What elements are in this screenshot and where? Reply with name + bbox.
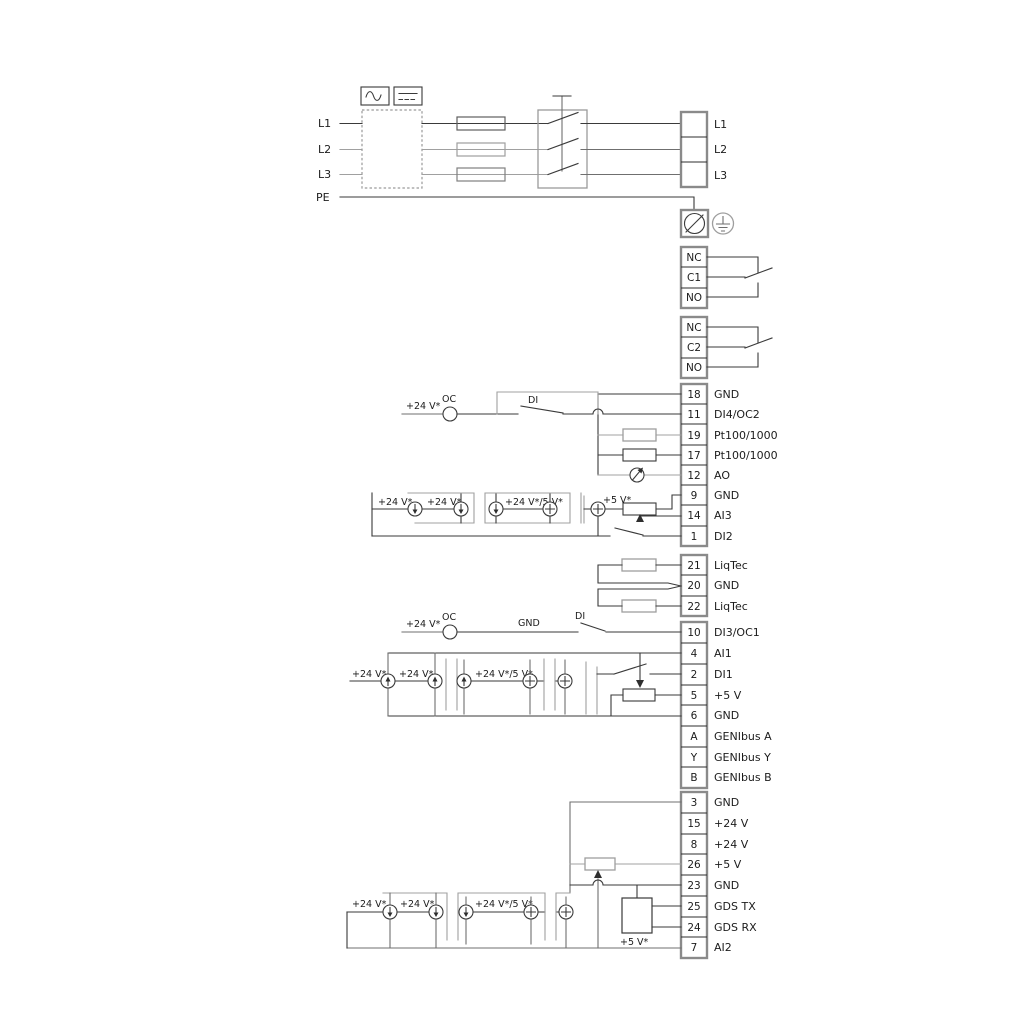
io1-t6-label: AI3 <box>714 509 732 522</box>
io2-t7-label: GENIbus B <box>714 771 772 784</box>
io2-t6-label: GENIbus Y <box>714 751 771 764</box>
output-label-l2: L2 <box>714 143 727 156</box>
io2-t3-num: 5 <box>691 690 698 702</box>
io3-t2-num: 8 <box>691 839 698 851</box>
wire-11-right <box>563 409 681 414</box>
ann-oc-io1: OC <box>442 394 456 405</box>
io3-t0-num: 3 <box>691 797 698 809</box>
io3-t6-label: GDS RX <box>714 921 757 934</box>
io3-t5-label: GDS TX <box>714 900 756 913</box>
dc-symbol-icon <box>394 87 422 105</box>
current-source-icon-d3 <box>459 905 473 919</box>
io1-t2-num: 19 <box>687 430 700 442</box>
oc-circle-icon-2 <box>443 625 457 639</box>
input-label-l3: L3 <box>318 168 331 181</box>
ann-v245-d: +24 V*/5 V* <box>475 899 533 910</box>
io3-section: 3 15 8 26 23 25 24 7 GND +24 V +24 V +5 … <box>347 792 757 958</box>
io1-t1-num: 11 <box>687 409 700 421</box>
io2-t2-num: 2 <box>691 669 698 681</box>
analog-output-meter-icon <box>630 468 644 483</box>
io3-t1-num: 15 <box>687 818 700 830</box>
pot-c-left <box>611 695 623 716</box>
liqtec-sensor-icon-2 <box>622 600 656 612</box>
io2-t1-num: 4 <box>691 648 698 660</box>
voltage-source-icon-c4 <box>523 674 537 688</box>
ann-v24-io2: +24 V* <box>406 619 441 630</box>
liqtec-t2-num: 22 <box>687 601 700 613</box>
io3-t3-label: +5 V <box>714 858 742 871</box>
io2-t6-num: Y <box>690 752 698 764</box>
io1-t7-label: DI2 <box>714 530 733 543</box>
ann-v24-d1: +24 V* <box>352 899 387 910</box>
io2-t4-num: 6 <box>691 710 698 722</box>
voltage-source-icon-c5 <box>558 674 572 688</box>
io1-t5-num: 9 <box>691 490 698 502</box>
current-source-icon-a1 <box>408 502 422 516</box>
ann-v5-d: +5 V* <box>620 937 649 948</box>
ann-v24-io1: +24 V* <box>406 401 441 412</box>
io1-t0-label: GND <box>714 388 739 401</box>
relay1-section: NC C1 NO <box>681 247 772 308</box>
relay1-no-wire <box>707 283 758 297</box>
wiring-diagram: L1 L2 L3 PE <box>0 0 1024 1024</box>
io1-t5-label: GND <box>714 489 739 502</box>
relay2-c2: C2 <box>687 342 701 354</box>
pe-screw-terminal-icon <box>681 210 708 237</box>
earth-ground-icon <box>713 213 734 234</box>
pot-wiper-arrow-d <box>594 870 602 878</box>
src-c-risers <box>388 653 565 716</box>
pt100-resistor-icon-1 <box>623 429 656 441</box>
current-source-icon-a2 <box>454 502 468 516</box>
wire-9 <box>656 495 681 509</box>
io3-t4-num: 23 <box>687 880 700 892</box>
io3-t0-label: GND <box>714 796 739 809</box>
output-label-l1: L1 <box>714 118 727 131</box>
io3-t1-label: +24 V <box>714 817 749 830</box>
di-blade-2 <box>581 623 681 632</box>
ann-v24-a1: +24 V* <box>378 497 413 508</box>
mains-terminal-block <box>681 112 707 187</box>
voltage-source-icon-d5 <box>559 905 573 919</box>
di2-blade <box>615 528 681 536</box>
io2-t1-label: AI1 <box>714 647 732 660</box>
io2-t0-num: 10 <box>687 627 700 639</box>
di1-switch <box>597 664 681 674</box>
io2-t2-label: DI1 <box>714 668 733 681</box>
wire-3-gnd <box>570 802 681 893</box>
output-label-l3: L3 <box>714 169 727 182</box>
liqtec-loop-1 <box>598 565 681 586</box>
relay2-nc-wire <box>707 327 758 343</box>
input-label-l1: L1 <box>318 117 331 130</box>
io3-t3-num: 26 <box>687 859 701 871</box>
wire-23-gnd <box>570 880 681 885</box>
io2-t7-num: B <box>690 772 697 784</box>
relay2-no: NO <box>686 362 702 374</box>
io3-t2-label: +24 V <box>714 838 749 851</box>
liqtec-t1-label: GND <box>714 579 739 592</box>
relay1-nc-wire <box>707 257 758 273</box>
io3-t4-label: GND <box>714 879 739 892</box>
io2-t4-label: GND <box>714 709 739 722</box>
io2-t3-label: +5 V <box>714 689 742 702</box>
ac-symbol-icon <box>361 87 389 105</box>
current-source-icon-c2 <box>428 674 442 688</box>
ann-di-io1: DI <box>528 395 538 406</box>
voltage-source-icon-a5 <box>591 502 605 516</box>
io1-section: 18 11 19 17 12 9 14 1 GND DI4/OC2 Pt100/… <box>372 384 778 546</box>
source-group-d: +24 V* +24 V* +24 V*/5 V* <box>347 893 573 948</box>
ann-v24-d2: +24 V* <box>400 899 435 910</box>
liqtec-t1-num: 20 <box>687 580 700 592</box>
io2-t5-label: GENIbus A <box>714 730 772 743</box>
ann-gnd-io2: GND <box>518 618 540 629</box>
liqtec-loop-2 <box>598 586 681 606</box>
io3-t7-label: AI2 <box>714 941 732 954</box>
io1-t3-label: Pt100/1000 <box>714 449 778 462</box>
relay1-nc: NC <box>686 252 701 264</box>
io1-t6-num: 14 <box>687 510 701 522</box>
input-label-l2: L2 <box>318 143 331 156</box>
relay2-no-wire <box>707 353 758 367</box>
io2-t0-label: DI3/OC1 <box>714 626 760 639</box>
io1-t1-label: DI4/OC2 <box>714 408 760 421</box>
relay2-section: NC C2 NO <box>681 317 772 378</box>
io2-section: 10 4 2 5 6 A Y B DI3/OC1 AI1 DI1 +5 V GN… <box>350 611 772 788</box>
pt100-resistor-icon-2 <box>623 449 656 461</box>
io1-t4-num: 12 <box>687 470 700 482</box>
source-group-a: +24 V* +24 V* +24 V*/5 V* +5 V* <box>372 493 632 536</box>
pot-icon-d <box>585 858 615 870</box>
io2-t5-num: A <box>690 731 698 743</box>
io3-t6-num: 24 <box>687 922 701 934</box>
io3-t7-num: 7 <box>691 942 698 954</box>
filter-box <box>362 110 422 188</box>
pot-wiper-arrow-c <box>636 680 644 688</box>
relay1-no: NO <box>686 292 702 304</box>
voltage-source-icon-d4 <box>524 905 538 919</box>
oc-circle-icon-1 <box>443 407 457 421</box>
liqtec-section: 21 20 22 LiqTec GND LiqTec <box>598 555 748 616</box>
ann-v5-a: +5 V* <box>603 495 632 506</box>
io3-t5-num: 25 <box>687 901 700 913</box>
wire-pe <box>340 197 694 210</box>
liqtec-t0-label: LiqTec <box>714 559 748 572</box>
voltage-source-icon-a4 <box>543 502 557 516</box>
io1-t3-num: 17 <box>687 450 700 462</box>
io1-t0-num: 18 <box>687 389 700 401</box>
liqtec-t0-num: 21 <box>687 560 700 572</box>
source-group-c: +24 V* +24 V* +24 V*/5 V* <box>350 653 681 716</box>
ann-di-io2: DI <box>575 611 585 622</box>
liqtec-sensor-icon-1 <box>622 559 656 571</box>
relay2-nc: NC <box>686 322 701 334</box>
input-label-pe: PE <box>316 191 330 204</box>
relay1-c1: C1 <box>687 272 701 284</box>
power-input-section: L1 L2 L3 PE <box>316 87 734 237</box>
ann-oc-io2: OC <box>442 612 456 623</box>
current-source-icon-d2 <box>429 905 443 919</box>
current-source-icon-a3 <box>489 502 503 516</box>
current-source-icon-c1 <box>381 674 395 688</box>
di-blade-1 <box>521 406 563 413</box>
current-source-icon-d1 <box>383 905 397 919</box>
current-source-icon-c3 <box>457 674 471 688</box>
io1-t4-label: AO <box>714 469 730 482</box>
gds-sensor-box <box>622 885 681 933</box>
io1-t2-label: Pt100/1000 <box>714 429 778 442</box>
pot-icon-c <box>623 689 655 701</box>
io1-t7-num: 1 <box>691 531 698 543</box>
liqtec-t2-label: LiqTec <box>714 600 748 613</box>
